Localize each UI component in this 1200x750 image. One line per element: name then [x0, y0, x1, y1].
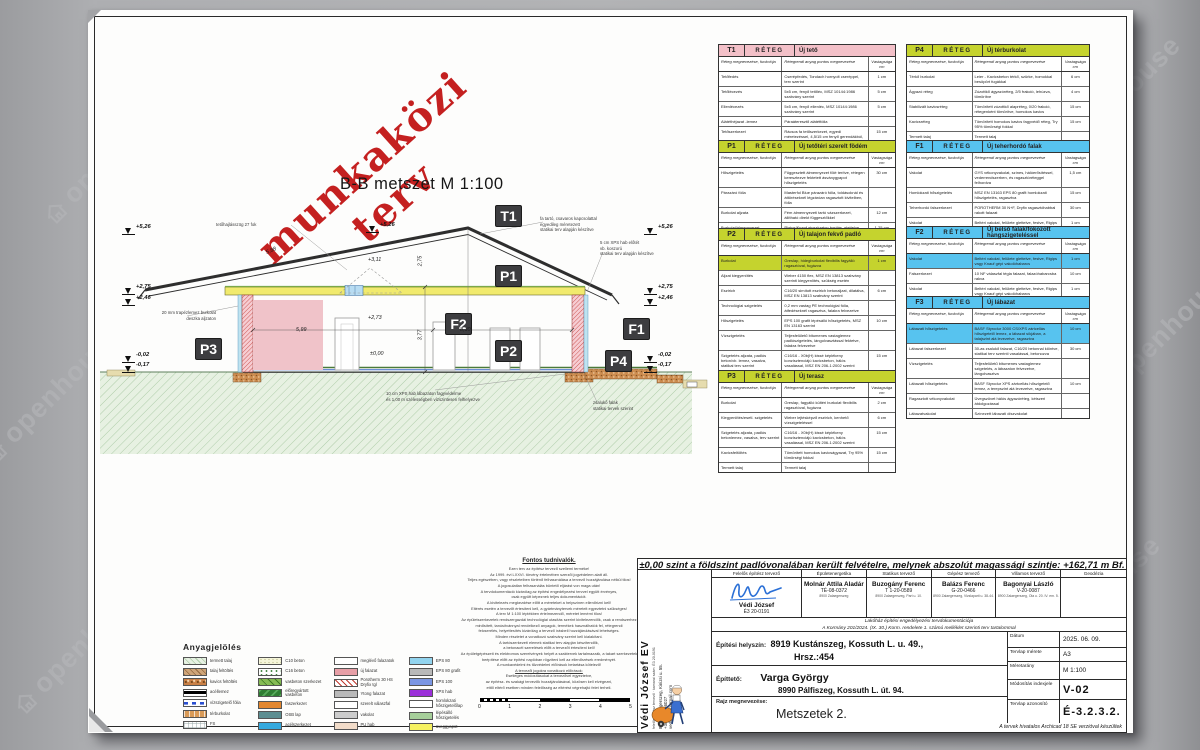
elevation-value: -0,17 — [658, 362, 671, 368]
layer-table-header: F3RÉTEGÚj lábazat — [907, 297, 1089, 309]
layer-material: C16/16 - X0b(H) kissé képlékeny konziszt… — [782, 428, 868, 447]
layer-name: Lábazati hőszigetelés — [907, 324, 973, 343]
material-swatch — [258, 657, 282, 665]
layer-name: Aljzat kiegyenlítés — [719, 271, 782, 285]
legend-label: C10 beton — [285, 659, 304, 664]
legend-item: termett talaj — [183, 657, 249, 665]
layer-material: Színezett lábazati díszvakolat — [973, 409, 1062, 418]
dimension-label: +2,73 — [368, 315, 382, 321]
layer-thickness: 15 cm — [1062, 188, 1089, 202]
layer-code: P2 — [719, 229, 745, 240]
elevation-value: +2,75 — [136, 284, 151, 290]
layer-title: Új talajon fekvő padló — [795, 229, 895, 240]
layer-row: Térkő burkolatLeier - Kavicsbeton térkő,… — [907, 72, 1089, 87]
signer-3: Statikus tervezőBuzogány FerencT 1-20-05… — [867, 570, 932, 617]
layer-row: VízszigetelésTeljesfelületű bitumenes va… — [907, 359, 1089, 379]
layer-row: KavicsrétegTömörített homokos kavics fag… — [907, 117, 1089, 132]
layer-word: RÉTEG — [745, 371, 795, 382]
layer-table-header: P2RÉTEGÚj talajon fekvő padló — [719, 229, 895, 241]
doc-type-line1: Lakóház építési engedélyezési tervdokume… — [712, 619, 1126, 626]
layer-title: Új terasz — [795, 371, 895, 382]
elevation-value: -0,02 — [136, 352, 149, 358]
layer-thickness: 15 cm — [869, 448, 895, 462]
documentation-type: Lakóház építési engedélyezési tervdokume… — [712, 618, 1126, 632]
layer-row: Párazáró fóliaMasterfol Blue párazáró fó… — [719, 188, 895, 208]
layer-table-P3: P3RÉTEGÚj teraszRéteg megnevezése, funkc… — [718, 370, 896, 473]
layer-name: Technológiai szigetelés — [719, 301, 782, 315]
signer-role: Gépész tervező — [932, 571, 996, 578]
layer-name: Kiegyenlítés/esetl. szigetelés — [719, 413, 782, 427]
legend-item: acéllemez — [183, 689, 249, 697]
layer-material: Cserépfedés, Tondach hornyolt cseréppel,… — [782, 72, 868, 86]
layer-name: Ragasztott vékonyvakolat — [907, 394, 973, 408]
legend-label: Porotherm 30 HS Dryfix tgl — [361, 678, 400, 687]
layer-material: Greslap, hidegburkolat flexibilis fagyál… — [782, 256, 868, 270]
scale-segment — [599, 699, 629, 701]
material-swatch — [183, 668, 207, 676]
layer-material: C16/20 simított esztrich betonaljzat, di… — [782, 286, 868, 300]
col-header: Vastagsága cm — [1062, 57, 1089, 71]
layer-name: Ágyazó réteg — [907, 87, 973, 101]
layer-title: Új belső falak/fokozott hangszigetelésse… — [983, 227, 1089, 238]
layer-row: Burkolat aljzataFém álmennyezeti tartó v… — [719, 208, 895, 223]
layer-table-header: F2RÉTEGÚj belső falak/fokozott hangszige… — [907, 227, 1089, 239]
material-swatch — [334, 679, 358, 687]
layer-name: Alátéthéjazat -lemez — [719, 117, 782, 126]
layer-thickness — [869, 271, 895, 285]
layer-table-F1: F1RÉTEGÚj teherhordó falakRéteg megnevez… — [906, 140, 1090, 233]
layer-name: Kavicsfeltöltés — [719, 448, 782, 462]
meta-label: Tervlap azonosító — [1008, 700, 1060, 723]
material-swatch — [258, 701, 282, 709]
material-swatch — [183, 721, 207, 729]
software-note: A tervek hivatalos Archicad 18 SE verzió… — [712, 723, 1126, 732]
legend-label: homlokzati hőszigetelőlap — [436, 699, 475, 708]
col-header: Vastagsága cm — [1062, 239, 1089, 253]
layer-name: Hőszigetelés — [719, 168, 782, 187]
layer-thickness: 15 cm — [869, 351, 895, 370]
layer-material: BASF Styrodur XPS zártcellás hőszigetelő… — [973, 379, 1062, 393]
material-swatch — [258, 711, 282, 719]
scale-bar: 012345 — [480, 698, 630, 712]
layer-material: Weber 4150 flex, MSZ EN 13813 szabvány s… — [782, 271, 868, 285]
col-header: Rétegrendi anyag pontos megnevezése — [973, 57, 1062, 71]
layer-material: Páraáteresztő alátétfólia — [782, 117, 868, 126]
meta-row-4: Módosítás indexjeleV-02 — [1008, 680, 1126, 700]
layer-table-subheader: Réteg megnevezése, funkciójaRétegrendi a… — [907, 309, 1089, 324]
signer-5: Villamos tervezőBagonyai LászlóV-20-0087… — [996, 570, 1061, 617]
legend-label: meglévő falazatok — [361, 659, 395, 664]
col-header: Vastagsága cm — [1062, 309, 1089, 323]
note-line: Az épületgépészeti és elektromos szerelv… — [460, 651, 638, 657]
legend-item: Ytong falazat — [334, 690, 400, 698]
drawing-annotation: tetőhajlásszög 27 fok — [216, 222, 256, 228]
layer-thickness: 10 cm — [1062, 269, 1089, 283]
layer-material: Tömörített homokos kavics fagyvédő réteg… — [973, 117, 1062, 131]
section-marker-P3: P3 — [195, 338, 222, 360]
layer-row: Kiegyenlítés/esetl. szigetelésWeber lejt… — [719, 413, 895, 428]
elevation-line — [122, 362, 135, 363]
layer-thickness — [1062, 409, 1089, 418]
legend-item: PU hab — [334, 722, 400, 730]
layer-thickness: 10 cm — [1062, 324, 1089, 343]
elevation-value: +2,75 — [658, 284, 673, 290]
signer-role: Villamos tervező — [996, 571, 1060, 578]
dimension-label: 3,77 — [417, 330, 423, 341]
title-block: ±0,00 szint a földszint padlóvonalában k… — [637, 558, 1127, 733]
legend-item: meglévő falazatok — [334, 657, 400, 665]
layer-table-header: F1RÉTEGÚj teherhordó falak — [907, 141, 1089, 153]
layer-row: VízszigetelésTeljesfelületű bitumenes va… — [719, 331, 895, 351]
signer-6: Geodézia — [1061, 570, 1126, 617]
client-name: Varga György — [760, 672, 828, 684]
elevation-line — [644, 362, 657, 363]
legend-columns: termett talajtalaj feltöltéskavics feltö… — [183, 657, 475, 731]
material-swatch — [258, 722, 282, 730]
col-header: Rétegrendi anyag pontos megnevezése — [782, 241, 868, 255]
layer-name: Homlokzati hőszigetelés — [907, 188, 973, 202]
layer-name: Teherhordó falszerkezet — [907, 203, 973, 217]
screenshot-stage: openhouseopenhouseopenhouseopenhouseopen… — [0, 0, 1200, 750]
layer-material: 10 NF válaszfal tégla falazat, falazóhab… — [973, 269, 1062, 283]
layer-name: Tetőlécezés — [719, 87, 782, 101]
layer-material: Greslap, fagyálló kültéri burkolat flexi… — [782, 398, 868, 412]
col-header: Réteg megnevezése, funkciója — [719, 153, 782, 167]
layer-thickness: 1 cm — [869, 256, 895, 270]
layer-thickness: 15 cm — [1062, 102, 1089, 116]
layer-row: EsztrichC16/20 simított esztrich betonal… — [719, 286, 895, 301]
terrain-hatch — [100, 372, 692, 454]
signer-address: 8900 Zalaegerszeg, Part u. 10. — [867, 594, 931, 598]
layer-row: Aljzat kiegyenlítésWeber 4150 flex, MSZ … — [719, 271, 895, 286]
layer-thickness: 6 cm — [869, 413, 895, 427]
layer-thickness: 15 cm — [869, 428, 895, 447]
layer-thickness: 15 cm — [1062, 117, 1089, 131]
col-header: Rétegrendi anyag pontos megnevezése — [973, 309, 1062, 323]
signer-name: Balázs Ferenc — [932, 581, 996, 588]
legend-label: XPS hab — [436, 690, 453, 695]
layer-material: 5x5 cm, fenyő ellenléc, MSZ 10144:1986 s… — [782, 102, 868, 116]
layer-title: Új térburkolat — [983, 45, 1089, 56]
layer-material: Üvegszövet hálós ágyazóréteg, kétszeri á… — [973, 394, 1062, 408]
layer-material: 0,2 mm vastag PE technológiai fólia, átf… — [782, 301, 868, 315]
material-swatch — [183, 657, 207, 665]
layer-thickness: 10 cm — [869, 316, 895, 330]
layer-row: KavicsfeltöltésTömörített homokos kavics… — [719, 448, 895, 463]
signer-name: Bagonyai László — [996, 581, 1060, 588]
material-swatch — [409, 657, 433, 665]
site-address: 8919 Kustánszeg, Kossuth L. u. 49., — [771, 639, 924, 649]
meta-label: Méretarány — [1008, 662, 1060, 679]
legend-column: meglévő falazatokúj falazatPorotherm 30 … — [334, 657, 400, 731]
layer-table-header: T1RÉTEGÚj tető — [719, 45, 895, 57]
layer-row: Falszerkezet10 NF válaszfal tégla falaza… — [907, 269, 1089, 284]
legend-item: üveggyapot — [409, 723, 475, 731]
elevation-value: -0,17 — [136, 362, 149, 368]
layer-name: Lábazati hőszigetelés — [907, 379, 973, 393]
layer-row: Alátéthéjazat -lemezPáraáteresztő alátét… — [719, 117, 895, 127]
legend-item: szerelt válaszfal — [334, 701, 400, 709]
layer-thickness: 4 cm — [1062, 87, 1089, 101]
legend-item: Porotherm 30 HS Dryfix tgl — [334, 678, 400, 687]
layer-material: EPS 100 grafit lépésálló hőszigetelés, M… — [782, 316, 868, 330]
legend-item: lépésálló hőszigetelés — [409, 711, 475, 720]
layer-row: Tetőlécezés5x5 cm, fenyő tetőléc, MSZ 10… — [719, 87, 895, 102]
legend-label: FS — [210, 722, 215, 727]
legend-label: üveggyapot — [436, 725, 458, 730]
layer-row: HőszigetelésFüggesztett álmennyezet fölé… — [719, 168, 895, 188]
layer-material: Tömörített zúzottkő alapréteg, 0/20 frak… — [973, 102, 1062, 116]
col-header: Rétegrendi anyag pontos megnevezése — [782, 57, 868, 71]
layer-row: Technológiai szigetelés0,2 mm vastag PE … — [719, 301, 895, 316]
legend-label: EPS 100 — [436, 680, 453, 685]
col-header: Vastagsága cm — [1062, 153, 1089, 167]
signer-role: Felelős építész tervező — [712, 571, 801, 578]
layer-material: 5x5 cm, fenyő tetőléc, MSZ 10144:1986 sz… — [782, 87, 868, 101]
layer-row: Lábazati hőszigetelésBASF Styrodur 3000 … — [907, 324, 1089, 344]
layer-material: Zúzottkő ágyazóréteg, 2/5 frakció, lehúz… — [973, 87, 1062, 101]
legend-label: előregyártott vasbeton — [285, 689, 324, 698]
legend-item: előregyártott vasbeton — [258, 689, 324, 698]
layer-material: BASF Styrodur 3000 CS/XPS zártcellás hős… — [973, 324, 1062, 343]
layer-row: Termett talajTermett talaj — [719, 463, 895, 472]
layer-code: F1 — [907, 141, 933, 152]
material-swatch — [334, 690, 358, 698]
material-swatch — [409, 678, 433, 686]
signer-name: Molnár Attila Aladár — [802, 581, 866, 588]
dimension-label: ±0,00 — [370, 351, 383, 357]
site-parcel: Hrsz.:454 — [794, 652, 1003, 662]
layer-thickness — [869, 463, 895, 472]
layer-thickness: 10 cm — [1062, 379, 1089, 393]
layer-material: 30-as zsalukő falazat, C16/20 betonnal k… — [973, 344, 1062, 358]
drawing-name-row: Rajz megnevezése: Metszetek 2. — [712, 697, 1007, 723]
legend-item: C10 beton — [258, 657, 324, 665]
drawing-annotation: 10 cm XPS hab lábazaton fagyvédelme és 1… — [386, 391, 480, 402]
legend-label: talaj feltöltés — [210, 669, 233, 674]
col-header: Réteg megnevezése, funkciója — [719, 383, 782, 397]
signer-name: Védi József — [712, 602, 801, 609]
layer-name: Párazáró fólia — [719, 188, 782, 207]
layer-name: Szigetelés aljzata, padlós beton/vb. lem… — [719, 351, 782, 370]
col-header: Réteg megnevezése, funkciója — [907, 153, 973, 167]
layer-name: Falszerkezet — [907, 269, 973, 283]
col-header: Rétegrendi anyag pontos megnevezése — [782, 153, 868, 167]
layer-thickness: 5 cm — [869, 87, 895, 101]
layer-thickness: 12 cm — [869, 208, 895, 222]
layer-thickness: 1 cm — [869, 72, 895, 86]
col-header: Rétegrendi anyag pontos megnevezése — [973, 239, 1062, 253]
client-address: 8990 Pálfiszeg, Kossuth L. út. 94. — [778, 686, 1003, 695]
elevation-line — [122, 372, 135, 373]
layer-thickness — [1062, 359, 1089, 378]
layer-material: Masterfol Blue párazáró fólia, toldásokn… — [782, 188, 868, 207]
layer-code: F3 — [907, 297, 933, 308]
elevation-line — [122, 305, 135, 306]
layer-thickness: 2 cm — [869, 398, 895, 412]
site-label: Építési helyszín: — [716, 642, 766, 649]
layer-table-subheader: Réteg megnevezése, funkciójaRétegrendi a… — [719, 57, 895, 72]
legend-item: vízszigetelő fólia — [183, 699, 249, 707]
material-swatch — [334, 701, 358, 709]
material-swatch — [409, 700, 433, 708]
zero-level-note: ±0,00 szint a földszint padlóvonalában k… — [638, 559, 1126, 570]
legend-label: lépésálló hőszigetelés — [436, 711, 475, 720]
dimension-label: 5,99 — [296, 327, 307, 333]
col-header: Rétegrendi anyag pontos megnevezése — [973, 153, 1062, 167]
meta-row-5: Tervlap azonosítóÉ-3.2.3.2. — [1008, 700, 1126, 723]
layer-code: F2 — [907, 227, 933, 238]
material-swatch — [258, 668, 282, 676]
signer-role: Geodézia — [1061, 571, 1126, 578]
col-header: Vastagsága cm — [869, 241, 895, 255]
elevation-value: +5,26 — [136, 224, 151, 230]
layer-table-header: P3RÉTEGÚj terasz — [719, 371, 895, 383]
notes-title: Fontos tudnivalók. — [460, 558, 638, 564]
layer-name: Burkolat aljzata — [719, 208, 782, 222]
layer-thickness — [869, 331, 895, 350]
meta-value: É-3.2.3.2. — [1060, 700, 1126, 723]
layer-title: Új lábazat — [983, 297, 1089, 308]
layer-thickness: 30 cm — [869, 168, 895, 187]
page-dogear — [88, 10, 101, 23]
scale-label: 4 — [599, 704, 602, 710]
layer-material: Beltéri vakolat, felülete glettelve, fes… — [973, 254, 1062, 268]
scale-segment — [540, 699, 570, 701]
layer-name: Lábazatvakolat — [907, 409, 973, 418]
layer-row: Lábazat falszerkezet30-as zsalukő falaza… — [907, 344, 1089, 359]
layer-table-F3: F3RÉTEGÚj lábazatRéteg megnevezése, funk… — [906, 296, 1090, 419]
scale-bar-segments — [480, 698, 630, 702]
elevation-line — [366, 232, 379, 233]
layer-row: VakolatGYS vékonyvakolat, színes, hálóer… — [907, 168, 1089, 188]
layer-thickness — [1062, 394, 1089, 408]
scale-label: 0 — [478, 704, 481, 710]
elevation-value: -0,02 — [658, 352, 671, 358]
dimension-label: 8,30 — [460, 327, 471, 333]
legend-item: faszerkezet — [258, 701, 324, 709]
meta-row-1: Dátum2025. 06. 09. — [1008, 632, 1126, 648]
col-header: Réteg megnevezése, funkciója — [907, 239, 973, 253]
layer-name: Vakolat — [907, 168, 973, 187]
legend-label: termett talaj — [210, 659, 232, 664]
layer-table-T1: T1RÉTEGÚj tetőRéteg megnevezése, funkció… — [718, 44, 896, 147]
legend-item: térburkolat — [183, 710, 249, 718]
layer-name: Burkolat — [719, 256, 782, 270]
layer-code: P3 — [719, 371, 745, 382]
material-swatch — [258, 689, 282, 697]
elevation-line — [644, 372, 657, 373]
layer-thickness: 1 cm — [1062, 254, 1089, 268]
legend-item: acélszerkezet — [258, 722, 324, 730]
layer-title: Új tetőtéri szerelt födém — [795, 141, 895, 152]
material-swatch — [183, 689, 207, 697]
layer-code: P4 — [907, 45, 933, 56]
layer-word: RÉTEG — [745, 45, 795, 56]
elevation-value: +2,46 — [658, 295, 673, 301]
layer-table-subheader: Réteg megnevezése, funkciójaRétegrendi a… — [719, 241, 895, 256]
layer-name: Térkő burkolat — [907, 72, 973, 86]
meta-row-2: Tervlap méreteA3 — [1008, 648, 1126, 662]
drawing-name-label: Rajz megnevezése: — [716, 699, 1003, 705]
legend-item: C16 beton — [258, 668, 324, 676]
note-line: Az épületszerkezetek rendszergazdái tech… — [460, 617, 638, 623]
legend-label: PU hab — [361, 723, 375, 728]
layer-table-P4: P4RÉTEGÚj térburkolatRéteg megnevezése, … — [906, 44, 1090, 142]
layer-row: BurkolatGreslap, hidegburkolat flexibili… — [719, 256, 895, 271]
signer-role: Épületenergetika — [802, 571, 866, 578]
legend-item: talaj feltöltés — [183, 668, 249, 676]
material-swatch — [183, 678, 207, 686]
layer-table-subheader: Réteg megnevezése, funkciójaRétegrendi a… — [907, 153, 1089, 168]
legend-label: Ytong falazat — [361, 692, 385, 697]
layer-row: Ágyazó rétegZúzottkő ágyazóréteg, 2/5 fr… — [907, 87, 1089, 102]
legend-label: vízszigetelő fólia — [210, 701, 241, 706]
scale-label: 3 — [569, 704, 572, 710]
layer-name: Stabilizált kavicsréteg — [907, 102, 973, 116]
signer-address: 8900 Zalaegerszeg, Vizslaparti u. 38-44. — [932, 594, 996, 598]
layer-table-subheader: Réteg megnevezése, funkciójaRétegrendi a… — [907, 239, 1089, 254]
legend-label: kavics feltöltés — [210, 680, 237, 685]
signer-registration: É3 20-0191 — [712, 609, 801, 615]
layer-row: Szigetelés aljzata, padlós beton/vb. lem… — [719, 351, 895, 371]
scale-segment — [511, 699, 541, 701]
layer-word: RÉTEG — [933, 141, 983, 152]
layer-table-subheader: Réteg megnevezése, funkciójaRétegrendi a… — [907, 57, 1089, 72]
legend-label: acélszerkezet — [285, 723, 311, 728]
legend-label: OSB lap — [285, 713, 301, 718]
layer-row: Ellenlécezés5x5 cm, fenyő ellenléc, MSZ … — [719, 102, 895, 117]
layer-row: Szigetelés aljzata, padlós betonlemez, v… — [719, 428, 895, 448]
layer-name: Burkolat — [719, 398, 782, 412]
layer-word: RÉTEG — [933, 227, 983, 238]
drawing-sheet: munkaközi terv B-B metszet M 1:100 — [88, 10, 1133, 733]
layer-row: HőszigetelésEPS 100 grafit lépésálló hős… — [719, 316, 895, 331]
section-marker-P1: P1 — [495, 265, 522, 287]
layer-name: Esztrich — [719, 286, 782, 300]
layer-word: RÉTEG — [745, 229, 795, 240]
layer-row: Stabilizált kavicsrétegTömörített zúzott… — [907, 102, 1089, 117]
layer-row: Ragasztott vékonyvakolatÜvegszövet hálós… — [907, 394, 1089, 409]
legend-item: FS — [183, 721, 249, 729]
layer-code: P1 — [719, 141, 745, 152]
page-curl-inner — [89, 716, 105, 732]
meta-value: V-02 — [1060, 680, 1126, 699]
client-label: Építtető: — [716, 676, 742, 683]
drawing-annotation: 5 cm XPS hab előtét vb. koszorú statikai… — [600, 240, 654, 257]
legend-label: vakolat — [361, 713, 374, 718]
layer-word: RÉTEG — [933, 297, 983, 308]
col-header: Vastagsága cm — [869, 383, 895, 397]
layer-name: Vízszigetelés — [907, 359, 973, 378]
layer-row: Lábazati hőszigetelésBASF Styrodur XPS z… — [907, 379, 1089, 394]
layer-word: RÉTEG — [745, 141, 795, 152]
meta-value: 2025. 06. 09. — [1060, 632, 1126, 647]
dimension-label: +3,11 — [368, 257, 381, 263]
legend-label: szerelt válaszfal — [361, 702, 391, 707]
layer-name: Vakolat — [907, 254, 973, 268]
layer-table-F2: F2RÉTEGÚj belső falak/fokozott hangszige… — [906, 226, 1090, 299]
scale-label: 5 — [629, 704, 632, 710]
meta-label: Dátum — [1008, 632, 1060, 647]
elevation-value: +2,46 — [136, 295, 151, 301]
legend-column: termett talajtalaj feltöltéskavics feltö… — [183, 657, 249, 731]
signer-4: Gépész tervezőBalázs FerencG-20-04668900… — [932, 570, 997, 617]
meta-table: Dátum2025. 06. 09.Tervlap méreteA3Méreta… — [1008, 632, 1126, 723]
layer-material: Teljesfelületű bitumenes vastaglemez szi… — [973, 359, 1062, 378]
legend-item: vakolat — [334, 711, 400, 719]
elevation-value: +5,26 — [380, 222, 395, 228]
